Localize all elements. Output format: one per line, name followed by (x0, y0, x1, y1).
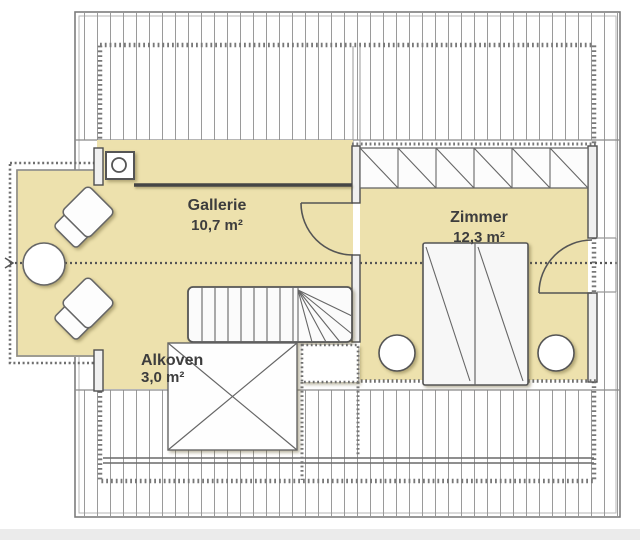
footer-strip (0, 529, 640, 540)
gallerie-area: 10,7 m² (191, 217, 243, 234)
alkoven-area: 3,0 m² (141, 369, 184, 386)
alkoven-label: Alkoven (141, 352, 203, 369)
chimney (106, 152, 134, 179)
bedside-table-right (538, 335, 574, 371)
zimmer-area: 12,3 m² (453, 229, 505, 246)
floor-plan-canvas: Gallerie 10,7 m² Zimmer 12,3 m² Alkoven … (0, 0, 640, 540)
wall-right-upper (588, 146, 597, 238)
stairwell-void-dashed (302, 345, 358, 382)
wall-right-lower (588, 293, 597, 382)
balcony-round-table (23, 243, 65, 285)
wall-left-top-stub (94, 148, 103, 185)
floor-plan-drawing: Gallerie 10,7 m² Zimmer 12,3 m² Alkoven … (0, 0, 640, 540)
wall-partition-lower (352, 255, 360, 342)
staircase (188, 287, 352, 342)
wall-left-bottom-stub (94, 350, 103, 391)
bedside-table-left (379, 335, 415, 371)
wall-partition-upper (352, 146, 360, 203)
double-bed (423, 243, 528, 385)
wardrobe-row (352, 144, 597, 188)
gallerie-label: Gallerie (188, 197, 247, 214)
zimmer-label: Zimmer (450, 209, 508, 226)
